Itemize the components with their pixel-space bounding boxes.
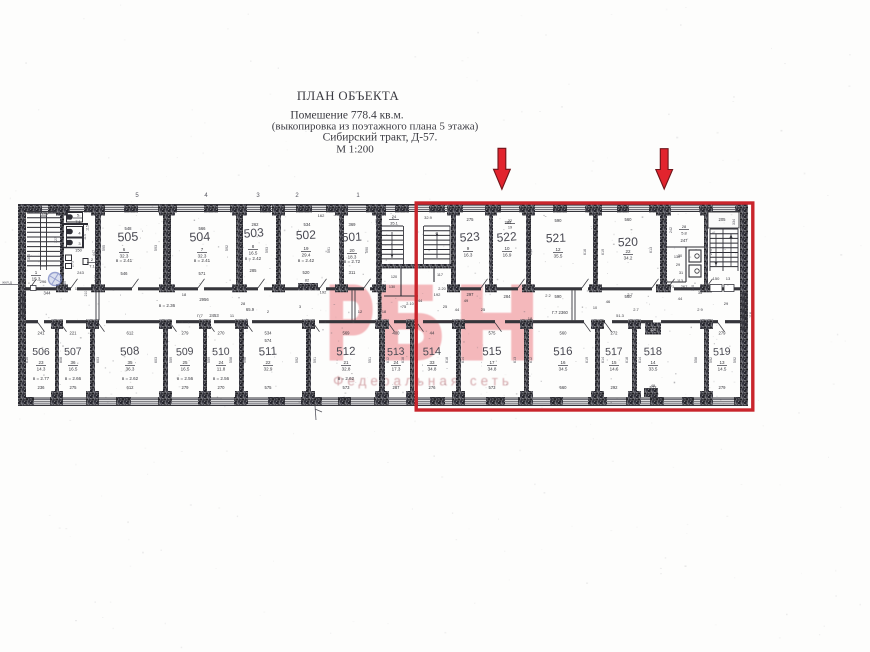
svg-text:279: 279: [719, 385, 727, 390]
svg-text:28: 28: [241, 301, 246, 306]
svg-text:120: 120: [391, 275, 397, 279]
svg-text:16.9: 16.9: [503, 253, 512, 258]
svg-text:504: 504: [189, 229, 211, 244]
svg-text:616: 616: [583, 249, 587, 255]
svg-text:285: 285: [250, 268, 258, 273]
svg-text:614: 614: [461, 357, 465, 363]
svg-text:24: 24: [393, 360, 399, 365]
svg-text:35.1: 35.1: [390, 221, 399, 226]
svg-text:7.1: 7.1: [89, 264, 95, 269]
svg-text:574: 574: [265, 338, 273, 343]
svg-text:32.8: 32.8: [342, 367, 351, 372]
svg-text:14.3: 14.3: [37, 367, 46, 372]
svg-text:82: 82: [305, 278, 310, 283]
svg-text:75: 75: [402, 304, 407, 309]
svg-text:571: 571: [199, 271, 207, 276]
svg-text:297: 297: [467, 292, 475, 297]
svg-text:221: 221: [70, 331, 78, 336]
svg-text:573: 573: [343, 385, 351, 390]
svg-text:14: 14: [650, 360, 656, 365]
svg-text:610: 610: [25, 357, 29, 363]
svg-text:150: 150: [75, 248, 82, 253]
svg-text:46: 46: [606, 299, 611, 304]
svg-text:592: 592: [733, 357, 737, 363]
svg-text:270: 270: [709, 249, 713, 255]
svg-text:559: 559: [169, 357, 173, 363]
svg-text:560: 560: [560, 331, 568, 336]
svg-text:32.9: 32.9: [264, 367, 273, 372]
svg-text:534: 534: [304, 222, 312, 227]
svg-text:49: 49: [651, 383, 656, 388]
svg-text:21: 21: [343, 360, 349, 365]
svg-text:592: 592: [225, 245, 229, 251]
svg-text:619: 619: [585, 357, 589, 363]
svg-text:в = 2.56: в = 2.56: [213, 376, 230, 381]
svg-text:114: 114: [83, 234, 87, 240]
svg-text:305: 305: [27, 254, 31, 260]
svg-text:2956: 2956: [199, 297, 209, 302]
svg-text:2 9: 2 9: [697, 307, 703, 312]
svg-text:123: 123: [54, 237, 58, 243]
svg-text:593: 593: [154, 245, 158, 251]
svg-text:236: 236: [38, 385, 46, 390]
svg-text:18: 18: [182, 292, 187, 297]
svg-text:344: 344: [44, 291, 52, 296]
svg-text:519: 519: [713, 346, 731, 359]
svg-text:44: 44: [455, 307, 460, 312]
svg-text:32: 32: [508, 219, 512, 223]
svg-text:117: 117: [437, 273, 443, 277]
svg-text:в = 2.66: в = 2.66: [65, 376, 82, 381]
svg-text:в = 2.41: в = 2.41: [194, 258, 211, 263]
svg-text:10: 10: [593, 306, 597, 310]
svg-text:518: 518: [644, 346, 663, 359]
svg-text:513: 513: [387, 346, 405, 359]
svg-text:591: 591: [327, 247, 331, 253]
svg-text:559: 559: [207, 357, 211, 363]
svg-text:400: 400: [393, 331, 401, 336]
svg-text:521: 521: [546, 231, 567, 246]
svg-text:25: 25: [443, 304, 448, 309]
svg-text:522: 522: [496, 229, 517, 245]
svg-text:558: 558: [229, 357, 233, 363]
svg-text:16.5: 16.5: [181, 367, 190, 372]
svg-text:14.5: 14.5: [718, 367, 727, 372]
svg-text:34.5: 34.5: [559, 367, 568, 372]
svg-text:23: 23: [38, 360, 44, 365]
svg-text:51.3: 51.3: [616, 313, 625, 318]
svg-text:618: 618: [445, 357, 449, 363]
svg-text:ПЛАН ОБЪЕКТА: ПЛАН ОБЪЕКТА: [297, 89, 400, 103]
svg-text:276: 276: [429, 385, 437, 390]
svg-text:617: 617: [489, 247, 493, 253]
svg-text:505: 505: [117, 230, 138, 245]
svg-text:Федеральная сеть: Федеральная сеть: [333, 374, 513, 389]
svg-text:30: 30: [678, 254, 682, 258]
svg-text:592: 592: [295, 357, 299, 363]
svg-text:жил.д: жил.д: [2, 281, 13, 285]
svg-text:113: 113: [677, 279, 683, 283]
svg-text:2.20: 2.20: [438, 287, 445, 291]
svg-text:618: 618: [625, 357, 629, 363]
svg-text:2 7: 2 7: [627, 292, 633, 297]
svg-text:в = 2.36: в = 2.36: [159, 303, 176, 308]
svg-text:7.1: 7.1: [75, 219, 81, 224]
svg-text:16.5: 16.5: [69, 367, 78, 372]
svg-text:10: 10: [504, 246, 510, 251]
svg-text:22: 22: [265, 360, 271, 365]
svg-text:33.5: 33.5: [649, 367, 658, 372]
svg-text:44: 44: [678, 296, 683, 301]
svg-text:16.5: 16.5: [249, 251, 258, 256]
svg-text:11.8: 11.8: [217, 367, 226, 372]
svg-text:Сибирский тракт, Д-57.: Сибирский тракт, Д-57.: [323, 132, 438, 144]
svg-text:575: 575: [265, 385, 273, 390]
svg-text:510: 510: [212, 346, 230, 359]
svg-text:34: 34: [378, 304, 383, 309]
svg-text:612: 612: [127, 331, 135, 336]
svg-text:в: в: [127, 286, 129, 291]
svg-text:512: 512: [336, 346, 356, 359]
svg-text:334: 334: [732, 219, 736, 225]
svg-text:569: 569: [343, 331, 351, 336]
svg-text:34.8: 34.8: [488, 367, 497, 372]
svg-text:35: 35: [63, 281, 67, 285]
svg-text:614: 614: [638, 357, 642, 363]
svg-text:19: 19: [303, 246, 309, 251]
svg-text:28: 28: [682, 224, 687, 229]
svg-text:560: 560: [560, 385, 568, 390]
svg-text:16: 16: [560, 360, 566, 365]
svg-text:в = 2.56: в = 2.56: [177, 376, 194, 381]
svg-text:296: 296: [40, 279, 47, 284]
svg-text:14.6: 14.6: [610, 367, 619, 372]
svg-text:Г.7 2360: Г.7 2360: [552, 310, 568, 315]
svg-text:447: 447: [92, 250, 96, 256]
svg-text:18: 18: [382, 310, 386, 314]
svg-text:369: 369: [349, 222, 357, 227]
svg-text:603: 603: [96, 357, 100, 363]
svg-text:в = 2.41: в = 2.41: [116, 258, 133, 263]
svg-text:275: 275: [70, 385, 78, 390]
svg-text:71: 71: [670, 285, 674, 289]
svg-text:509: 509: [176, 345, 194, 358]
svg-text:в = 2.62: в = 2.62: [338, 376, 355, 381]
svg-text:36: 36: [70, 360, 76, 365]
svg-text:115: 115: [86, 225, 90, 231]
svg-text:29.4: 29.4: [302, 253, 311, 258]
svg-text:284: 284: [504, 294, 512, 299]
svg-text:44: 44: [430, 331, 435, 336]
svg-text:546: 546: [121, 271, 129, 276]
svg-text:613: 613: [513, 357, 517, 363]
svg-text:520: 520: [618, 235, 639, 250]
svg-text:311: 311: [349, 270, 356, 275]
svg-text:Г(7: Г(7: [197, 313, 203, 318]
svg-text:в = 2.42: в = 2.42: [245, 256, 262, 261]
svg-text:520: 520: [303, 270, 311, 275]
svg-text:65.9: 65.9: [246, 307, 255, 312]
svg-text:619: 619: [601, 249, 605, 255]
svg-text:285: 285: [42, 211, 50, 216]
svg-text:13: 13: [719, 360, 725, 365]
svg-text:44: 44: [418, 298, 423, 303]
svg-text:2.10: 2.10: [406, 302, 413, 306]
svg-text:617: 617: [453, 247, 457, 253]
svg-text:591: 591: [165, 245, 169, 251]
svg-text:34.2: 34.2: [624, 256, 633, 261]
svg-text:15: 15: [611, 360, 617, 365]
svg-text:590: 590: [555, 218, 563, 223]
svg-text:242: 242: [669, 227, 673, 233]
svg-text:506: 506: [32, 346, 50, 358]
svg-text:22: 22: [625, 249, 631, 254]
svg-text:612: 612: [386, 357, 390, 363]
svg-text:в = 2.77: в = 2.77: [33, 376, 50, 381]
svg-text:2.7: 2.7: [633, 307, 639, 312]
svg-text:514: 514: [423, 346, 442, 359]
svg-text:241: 241: [38, 331, 46, 336]
svg-text:162: 162: [318, 213, 325, 218]
svg-text:192: 192: [320, 290, 327, 295]
svg-text:613: 613: [649, 247, 653, 253]
svg-text:в = 2.42: в = 2.42: [298, 258, 315, 263]
svg-text:25: 25: [481, 307, 486, 312]
svg-text:20: 20: [349, 248, 355, 253]
svg-text:551: 551: [368, 357, 372, 363]
svg-text:612: 612: [529, 357, 533, 363]
svg-text:573: 573: [489, 385, 497, 390]
svg-text:5.8: 5.8: [681, 231, 687, 236]
svg-text:507: 507: [64, 346, 82, 359]
svg-text:267: 267: [681, 284, 688, 289]
svg-text:33: 33: [429, 360, 435, 365]
svg-text:279: 279: [182, 385, 190, 390]
svg-text:594: 594: [341, 247, 345, 253]
svg-text:120: 120: [650, 328, 656, 332]
svg-text:515: 515: [482, 346, 502, 359]
svg-text:36.3: 36.3: [126, 367, 135, 372]
svg-text:31: 31: [679, 271, 683, 275]
svg-text:593: 593: [265, 247, 269, 253]
svg-text:243: 243: [77, 270, 84, 275]
svg-text:560: 560: [625, 217, 633, 222]
svg-text:592: 592: [709, 357, 713, 363]
svg-text:270: 270: [218, 331, 226, 336]
svg-text:192: 192: [434, 292, 441, 297]
svg-text:501: 501: [341, 229, 362, 244]
svg-text:32.9: 32.9: [424, 215, 433, 220]
svg-text:29: 29: [724, 301, 729, 306]
svg-text:287: 287: [393, 385, 401, 390]
svg-text:130: 130: [389, 285, 395, 289]
svg-text:279: 279: [719, 331, 727, 336]
svg-text:608: 608: [59, 357, 63, 363]
svg-text:16.3: 16.3: [464, 253, 473, 258]
svg-text:517: 517: [605, 346, 623, 359]
svg-text:2453: 2453: [209, 313, 219, 318]
svg-text:М 1:200: М 1:200: [336, 144, 374, 156]
svg-text:35: 35: [127, 360, 133, 365]
svg-text:503: 503: [243, 225, 264, 240]
svg-text:186: 186: [75, 287, 81, 291]
svg-text:275: 275: [467, 217, 475, 222]
svg-text:210: 210: [84, 291, 88, 297]
svg-text:в = 2.72: в = 2.72: [344, 259, 361, 264]
svg-text:270: 270: [218, 385, 226, 390]
svg-text:29: 29: [676, 263, 680, 267]
svg-text:49 52: 49 52: [94, 275, 98, 284]
svg-text:2 2: 2 2: [545, 293, 551, 298]
svg-text:516: 516: [553, 346, 573, 359]
svg-text:129: 129: [375, 219, 379, 225]
svg-text:150: 150: [713, 276, 720, 281]
svg-text:523: 523: [459, 229, 480, 244]
svg-text:12: 12: [358, 309, 363, 314]
svg-text:49: 49: [464, 298, 469, 303]
svg-text:534: 534: [265, 331, 273, 336]
svg-text:508: 508: [120, 345, 140, 358]
svg-text:598: 598: [243, 357, 247, 363]
svg-text:292: 292: [611, 385, 619, 390]
svg-text:24: 24: [218, 360, 224, 365]
svg-text:25: 25: [182, 360, 188, 365]
svg-text:603: 603: [154, 357, 158, 363]
svg-text:18: 18: [528, 316, 533, 321]
svg-text:35: 35: [698, 291, 702, 295]
svg-text:17: 17: [489, 360, 495, 365]
svg-text:34.8: 34.8: [428, 367, 437, 372]
svg-text:35.5: 35.5: [554, 254, 563, 259]
svg-text:в = 2.62: в = 2.62: [122, 376, 139, 381]
svg-text:13: 13: [726, 276, 731, 281]
svg-text:595: 595: [102, 245, 106, 251]
svg-text:140: 140: [691, 285, 695, 291]
svg-text:591: 591: [313, 357, 317, 363]
svg-text:17.3: 17.3: [392, 367, 401, 372]
svg-text:614: 614: [601, 357, 605, 363]
svg-text:558: 558: [694, 357, 698, 363]
